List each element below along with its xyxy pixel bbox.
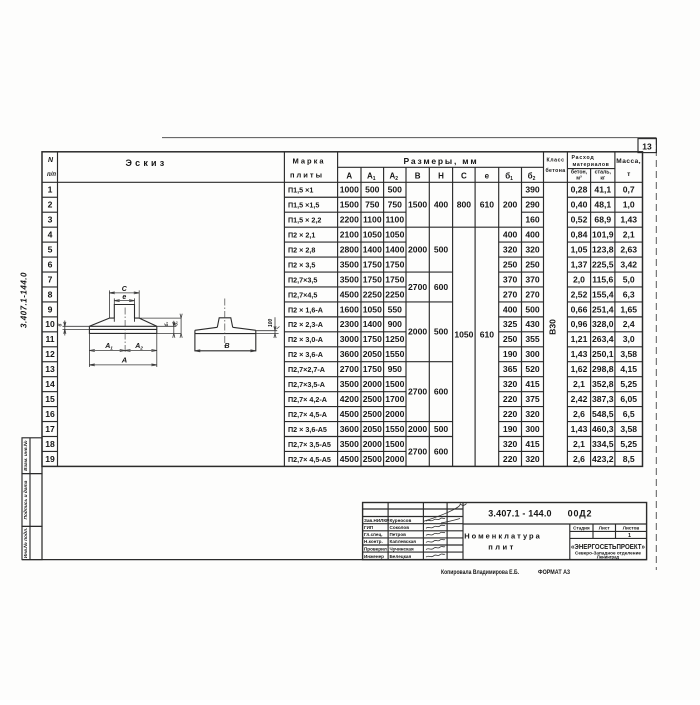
svg-text:390: 390 — [525, 185, 540, 195]
svg-text:П2 × 3,5: П2 × 3,5 — [288, 260, 315, 269]
svg-text:1750: 1750 — [363, 334, 382, 344]
svg-text:800: 800 — [457, 200, 472, 210]
svg-text:Расход: Расход — [571, 155, 594, 161]
svg-text:C: C — [461, 172, 467, 181]
svg-text:160: 160 — [525, 215, 540, 225]
svg-text:460,3: 460,3 — [592, 424, 614, 434]
svg-text:225,5: 225,5 — [592, 259, 614, 269]
svg-text:П1,5 ×1,5: П1,5 ×1,5 — [288, 201, 319, 210]
svg-text:Масса,: Масса, — [616, 158, 641, 165]
svg-text:10: 10 — [45, 319, 55, 329]
svg-text:Соколов: Соколов — [390, 525, 410, 530]
svg-text:548,5: 548,5 — [592, 409, 614, 419]
svg-text:370: 370 — [503, 274, 518, 284]
svg-text:2200: 2200 — [340, 215, 359, 225]
svg-text:2,1: 2,1 — [623, 230, 635, 240]
svg-text:3,42: 3,42 — [620, 259, 637, 269]
svg-text:1550: 1550 — [385, 349, 404, 359]
svg-text:6,3: 6,3 — [623, 289, 635, 299]
svg-text:4200: 4200 — [340, 394, 359, 404]
svg-text:115,6: 115,6 — [592, 274, 613, 284]
svg-text:2700: 2700 — [408, 282, 427, 292]
svg-text:кг: кг — [600, 176, 606, 182]
svg-text:Номенклатура: Номенклатура — [464, 532, 542, 541]
svg-text:0,7: 0,7 — [623, 185, 635, 195]
svg-text:Курносов: Курносов — [390, 518, 412, 523]
svg-text:3000: 3000 — [340, 334, 359, 344]
svg-text:430: 430 — [525, 319, 540, 329]
svg-text:19: 19 — [45, 454, 55, 464]
svg-text:П2,7×2,7-А: П2,7×2,7-А — [288, 365, 325, 374]
svg-text:334,5: 334,5 — [592, 439, 614, 449]
svg-text:610: 610 — [480, 200, 495, 210]
svg-text:Инженер: Инженер — [364, 554, 384, 559]
svg-text:Белецкая: Белецкая — [390, 554, 412, 559]
svg-text:2000: 2000 — [408, 245, 427, 255]
svg-text:1050: 1050 — [385, 230, 404, 240]
svg-text:2500: 2500 — [363, 394, 382, 404]
svg-text:2250: 2250 — [385, 289, 404, 299]
svg-text:1,62: 1,62 — [571, 364, 588, 374]
svg-text:263,4: 263,4 — [592, 334, 614, 344]
svg-text:13: 13 — [642, 142, 652, 152]
svg-text:П2,7× 4,2-А: П2,7× 4,2-А — [288, 395, 327, 404]
svg-text:Подпись и дата: Подпись и дата — [23, 480, 29, 519]
svg-text:1750: 1750 — [385, 259, 404, 269]
svg-text:1750: 1750 — [363, 274, 382, 284]
svg-text:Листов: Листов — [623, 525, 640, 530]
svg-text:325: 325 — [503, 319, 518, 329]
svg-text:290: 290 — [525, 200, 540, 210]
svg-text:1550: 1550 — [385, 424, 404, 434]
svg-text:320: 320 — [525, 454, 540, 464]
svg-text:П2,7× 4,5-А5: П2,7× 4,5-А5 — [288, 455, 331, 464]
svg-text:A: A — [346, 172, 352, 181]
svg-text:1100: 1100 — [385, 215, 404, 225]
svg-text:1750: 1750 — [385, 274, 404, 284]
svg-text:250: 250 — [525, 259, 540, 269]
svg-text:1,37: 1,37 — [571, 259, 588, 269]
svg-text:9: 9 — [48, 304, 53, 314]
svg-text:1500: 1500 — [385, 379, 404, 389]
svg-text:101,9: 101,9 — [592, 230, 614, 240]
svg-text:2000: 2000 — [363, 439, 382, 449]
svg-text:400: 400 — [503, 230, 518, 240]
svg-text:1750: 1750 — [363, 259, 382, 269]
svg-text:17: 17 — [45, 424, 55, 434]
svg-text:5,0: 5,0 — [623, 274, 635, 284]
svg-text:Н.контр.: Н.контр. — [364, 539, 383, 544]
svg-text:200: 200 — [503, 200, 518, 210]
svg-text:190: 190 — [503, 349, 518, 359]
svg-text:500: 500 — [434, 424, 449, 434]
svg-text:П2,7×3,5: П2,7×3,5 — [288, 275, 317, 284]
svg-text:б: б — [57, 323, 63, 326]
svg-text:600: 600 — [434, 446, 449, 456]
svg-text:1500: 1500 — [408, 200, 427, 210]
svg-text:B: B — [415, 172, 421, 181]
svg-text:2000: 2000 — [385, 409, 404, 419]
svg-text:материалов: материалов — [573, 162, 610, 168]
svg-text:2000: 2000 — [363, 379, 382, 389]
svg-text:0,66: 0,66 — [571, 304, 588, 314]
svg-text:950: 950 — [388, 364, 403, 374]
svg-text:250: 250 — [503, 334, 518, 344]
svg-text:415: 415 — [525, 379, 540, 389]
svg-text:п/п: п/п — [47, 172, 56, 178]
svg-text:В30: В30 — [548, 319, 558, 335]
svg-text:5: 5 — [48, 245, 53, 255]
svg-text:2000: 2000 — [408, 327, 427, 337]
svg-text:Взам. инв.№: Взам. инв.№ — [23, 440, 29, 471]
svg-text:1700: 1700 — [385, 394, 404, 404]
svg-text:5,25: 5,25 — [620, 439, 637, 449]
svg-text:423,2: 423,2 — [592, 454, 614, 464]
svg-text:0,28: 0,28 — [571, 185, 588, 195]
svg-text:e: e — [485, 172, 490, 181]
svg-text:1400: 1400 — [363, 245, 382, 255]
svg-text:2,1: 2,1 — [573, 439, 585, 449]
svg-text:00Д2: 00Д2 — [568, 509, 593, 519]
svg-text:400: 400 — [503, 304, 518, 314]
svg-text:500: 500 — [525, 304, 540, 314]
svg-text:415: 415 — [525, 439, 540, 449]
svg-text:Гл.спец.: Гл.спец. — [364, 532, 383, 537]
svg-text:П2,7×4,5: П2,7×4,5 — [288, 290, 317, 299]
svg-text:7: 7 — [48, 274, 53, 284]
svg-text:220: 220 — [503, 454, 518, 464]
svg-text:0,40: 0,40 — [571, 200, 588, 210]
svg-text:C: C — [122, 286, 128, 293]
svg-text:48,1: 48,1 — [594, 200, 611, 210]
svg-text:3,58: 3,58 — [620, 349, 637, 359]
svg-text:Зав.НИЛКР: Зав.НИЛКР — [364, 518, 389, 523]
svg-text:2500: 2500 — [363, 409, 382, 419]
svg-text:П2,7× 4,5-А: П2,7× 4,5-А — [288, 410, 327, 419]
svg-text:П2 × 2,1: П2 × 2,1 — [288, 231, 315, 240]
svg-text:2,0: 2,0 — [573, 274, 585, 284]
svg-text:520: 520 — [525, 364, 540, 374]
svg-text:2,1: 2,1 — [573, 379, 585, 389]
svg-text:1000: 1000 — [340, 185, 359, 195]
svg-text:Ленинград: Ленинград — [597, 555, 620, 560]
svg-text:плит: плит — [488, 543, 516, 552]
svg-text:2,6: 2,6 — [573, 454, 585, 464]
svg-text:370: 370 — [525, 274, 540, 284]
svg-text:1400: 1400 — [363, 319, 382, 329]
svg-text:68,9: 68,9 — [594, 215, 611, 225]
svg-text:15: 15 — [45, 394, 55, 404]
svg-text:300: 300 — [525, 424, 540, 434]
svg-text:2700: 2700 — [408, 387, 427, 397]
svg-text:ФОРМАТ А3: ФОРМАТ А3 — [538, 569, 570, 576]
svg-text:1,05: 1,05 — [571, 245, 588, 255]
svg-text:Петров: Петров — [390, 532, 407, 537]
svg-text:1050: 1050 — [363, 304, 382, 314]
svg-text:A2: A2 — [134, 343, 143, 350]
svg-text:400: 400 — [525, 230, 540, 240]
svg-text:2700: 2700 — [408, 446, 427, 456]
svg-text:П2 × 3,0-А: П2 × 3,0-А — [288, 335, 323, 344]
svg-text:3.407.1 - 144.0: 3.407.1 - 144.0 — [488, 509, 552, 519]
svg-text:387,3: 387,3 — [592, 394, 614, 404]
svg-text:900: 900 — [388, 319, 403, 329]
svg-text:б₂: б₂ — [163, 321, 169, 326]
svg-text:A: A — [121, 355, 127, 364]
svg-text:2100: 2100 — [340, 230, 359, 240]
svg-text:N: N — [48, 157, 54, 164]
svg-text:1: 1 — [48, 185, 53, 195]
svg-text:Чучинская: Чучинская — [390, 546, 414, 551]
svg-text:1250: 1250 — [385, 334, 404, 344]
svg-text:П2 × 2,8: П2 × 2,8 — [288, 246, 315, 255]
svg-text:П1,5 ×1: П1,5 ×1 — [288, 186, 313, 195]
svg-text:365: 365 — [503, 364, 518, 374]
svg-text:155,4: 155,4 — [592, 289, 614, 299]
svg-text:A1: A1 — [367, 172, 376, 183]
svg-text:e: e — [122, 294, 126, 301]
svg-text:3.407.1-144.0: 3.407.1-144.0 — [20, 272, 29, 328]
svg-text:220: 220 — [503, 394, 518, 404]
svg-text:1400: 1400 — [385, 245, 404, 255]
svg-text:328,0: 328,0 — [592, 319, 614, 329]
svg-text:Стадия: Стадия — [573, 525, 590, 530]
svg-text:123,8: 123,8 — [592, 245, 614, 255]
svg-text:2000: 2000 — [385, 454, 404, 464]
svg-text:3,58: 3,58 — [620, 424, 637, 434]
svg-text:3500: 3500 — [340, 259, 359, 269]
svg-text:2,4: 2,4 — [623, 319, 635, 329]
svg-text:251,4: 251,4 — [592, 304, 614, 314]
svg-text:2500: 2500 — [363, 454, 382, 464]
svg-text:500: 500 — [434, 327, 449, 337]
svg-text:2,63: 2,63 — [620, 245, 637, 255]
svg-text:П2 × 1,6-А: П2 × 1,6-А — [288, 305, 323, 314]
svg-text:6,5: 6,5 — [623, 409, 635, 419]
svg-text:П2 × 3,6-А5: П2 × 3,6-А5 — [288, 425, 327, 434]
svg-text:355: 355 — [525, 334, 540, 344]
svg-text:13: 13 — [45, 364, 55, 374]
svg-text:2,42: 2,42 — [571, 394, 588, 404]
svg-text:бетона: бетона — [545, 167, 565, 174]
svg-text:П2,7×3,5-А: П2,7×3,5-А — [288, 380, 325, 389]
svg-text:B: B — [224, 343, 229, 350]
svg-text:A1: A1 — [104, 343, 113, 350]
svg-text:плиты: плиты — [290, 171, 324, 180]
svg-text:Каплевская: Каплевская — [390, 539, 417, 544]
svg-text:610: 610 — [480, 330, 495, 340]
svg-text:3500: 3500 — [340, 379, 359, 389]
svg-text:Марка: Марка — [292, 157, 325, 166]
svg-text:600: 600 — [434, 387, 449, 397]
svg-text:300: 300 — [525, 349, 540, 359]
svg-text:бетон,: бетон, — [571, 169, 588, 176]
svg-text:600: 600 — [434, 282, 449, 292]
svg-text:Лист: Лист — [599, 525, 611, 530]
svg-text:270: 270 — [525, 289, 540, 299]
svg-text:1600: 1600 — [340, 304, 359, 314]
svg-text:3600: 3600 — [340, 349, 359, 359]
svg-text:100: 100 — [268, 319, 274, 328]
svg-text:П2 × 2,3-А: П2 × 2,3-А — [288, 320, 323, 329]
svg-text:270: 270 — [503, 289, 518, 299]
svg-text:Размеры, мм: Размеры, мм — [404, 156, 479, 166]
svg-text:2700: 2700 — [340, 364, 359, 374]
svg-text:500: 500 — [434, 245, 449, 255]
svg-text:1050: 1050 — [363, 230, 382, 240]
svg-text:2250: 2250 — [363, 289, 382, 299]
svg-text:м³: м³ — [576, 176, 582, 182]
svg-text:т: т — [627, 171, 630, 178]
svg-text:П2,7× 3,5-А5: П2,7× 3,5-А5 — [288, 440, 331, 449]
svg-text:8: 8 — [48, 289, 53, 299]
svg-text:1,43: 1,43 — [571, 424, 588, 434]
svg-text:1500: 1500 — [385, 439, 404, 449]
svg-text:320: 320 — [525, 409, 540, 419]
svg-text:3,0: 3,0 — [623, 334, 635, 344]
svg-text:4500: 4500 — [340, 289, 359, 299]
svg-text:18: 18 — [45, 439, 55, 449]
svg-text:2000: 2000 — [408, 424, 427, 434]
svg-text:1,43: 1,43 — [620, 215, 637, 225]
svg-text:Эскиз: Эскиз — [126, 158, 168, 168]
svg-text:2,6: 2,6 — [573, 409, 585, 419]
svg-text:16: 16 — [45, 409, 55, 419]
svg-text:П2 × 3,6-А: П2 × 3,6-А — [288, 350, 323, 359]
svg-text:0,96: 0,96 — [571, 319, 588, 329]
svg-text:1050: 1050 — [454, 330, 473, 340]
svg-text:3: 3 — [48, 215, 53, 225]
svg-text:A2: A2 — [390, 172, 399, 183]
svg-text:б₁: б₁ — [173, 321, 179, 326]
svg-text:320: 320 — [525, 245, 540, 255]
svg-text:190: 190 — [503, 424, 518, 434]
svg-text:б2: б2 — [528, 172, 536, 183]
svg-text:298,8: 298,8 — [592, 364, 614, 374]
svg-text:1: 1 — [628, 533, 631, 539]
svg-text:2: 2 — [48, 200, 53, 210]
svg-text:1,43: 1,43 — [571, 349, 588, 359]
svg-text:0,84: 0,84 — [571, 230, 588, 240]
svg-text:550: 550 — [388, 304, 403, 314]
svg-text:3500: 3500 — [340, 274, 359, 284]
svg-text:5,25: 5,25 — [620, 379, 637, 389]
svg-text:2050: 2050 — [363, 349, 382, 359]
svg-text:Проверил: Проверил — [364, 546, 387, 551]
svg-text:4500: 4500 — [340, 454, 359, 464]
svg-text:Инв.№ подл.: Инв.№ подл. — [23, 528, 29, 559]
svg-text:8,5: 8,5 — [623, 454, 635, 464]
svg-text:320: 320 — [503, 245, 518, 255]
svg-text:4,15: 4,15 — [620, 364, 637, 374]
svg-text:6: 6 — [48, 259, 53, 269]
svg-text:3600: 3600 — [340, 424, 359, 434]
svg-text:4500: 4500 — [340, 409, 359, 419]
svg-text:41,1: 41,1 — [594, 185, 611, 195]
svg-text:2800: 2800 — [340, 245, 359, 255]
svg-text:2050: 2050 — [363, 424, 382, 434]
svg-text:12: 12 — [45, 349, 55, 359]
svg-text:2,52: 2,52 — [571, 289, 588, 299]
svg-text:352,8: 352,8 — [592, 379, 614, 389]
svg-text:1100: 1100 — [363, 215, 382, 225]
svg-text:3500: 3500 — [340, 439, 359, 449]
svg-text:220: 220 — [503, 409, 518, 419]
svg-text:250,1: 250,1 — [592, 349, 614, 359]
svg-text:H: H — [438, 172, 444, 181]
svg-text:14: 14 — [45, 379, 55, 389]
svg-text:500: 500 — [388, 185, 403, 195]
svg-text:375: 375 — [525, 394, 540, 404]
svg-text:250: 250 — [503, 259, 518, 269]
svg-text:400: 400 — [434, 200, 449, 210]
svg-text:6,05: 6,05 — [620, 394, 637, 404]
svg-text:1,21: 1,21 — [571, 334, 588, 344]
svg-text:320: 320 — [503, 379, 518, 389]
svg-text:П1,5 × 2,2: П1,5 × 2,2 — [288, 216, 321, 225]
svg-text:Класс: Класс — [546, 158, 564, 164]
svg-text:1,0: 1,0 — [623, 200, 635, 210]
svg-text:0,52: 0,52 — [571, 215, 588, 225]
svg-text:11: 11 — [45, 334, 54, 344]
svg-text:1500: 1500 — [340, 200, 359, 210]
svg-text:320: 320 — [503, 439, 518, 449]
svg-text:1750: 1750 — [363, 364, 382, 374]
svg-text:б1: б1 — [505, 172, 513, 183]
svg-text:2300: 2300 — [340, 319, 359, 329]
svg-text:4: 4 — [48, 230, 53, 240]
svg-text:ГИП: ГИП — [364, 525, 373, 530]
svg-text:750: 750 — [365, 200, 380, 210]
svg-text:500: 500 — [365, 185, 380, 195]
svg-text:750: 750 — [388, 200, 403, 210]
svg-text:1,65: 1,65 — [620, 304, 637, 314]
svg-text:Копировала Владимирова Е.Б.: Копировала Владимирова Е.Б. — [441, 569, 519, 576]
